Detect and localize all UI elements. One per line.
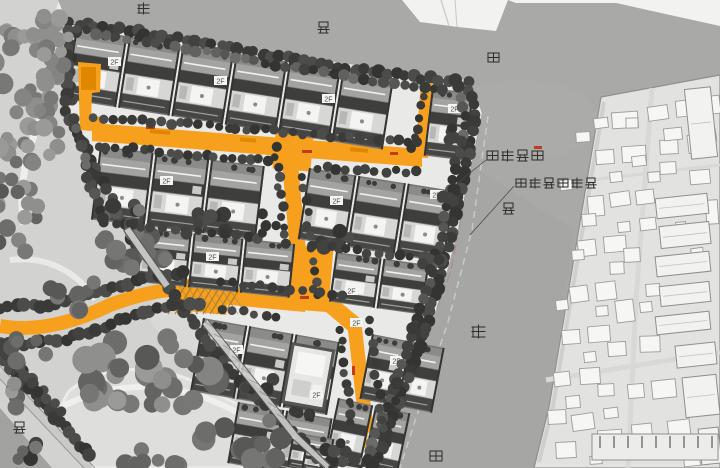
svg-text:2F: 2F	[332, 199, 340, 206]
svg-text:2F: 2F	[312, 393, 320, 400]
svg-text:2F: 2F	[347, 289, 355, 296]
svg-text:2F: 2F	[216, 79, 224, 86]
svg-text:2F: 2F	[208, 255, 216, 262]
svg-text:2F: 2F	[162, 179, 170, 186]
svg-text:2F: 2F	[352, 321, 360, 328]
svg-text:2F: 2F	[110, 60, 118, 67]
svg-text:2F: 2F	[324, 97, 332, 104]
